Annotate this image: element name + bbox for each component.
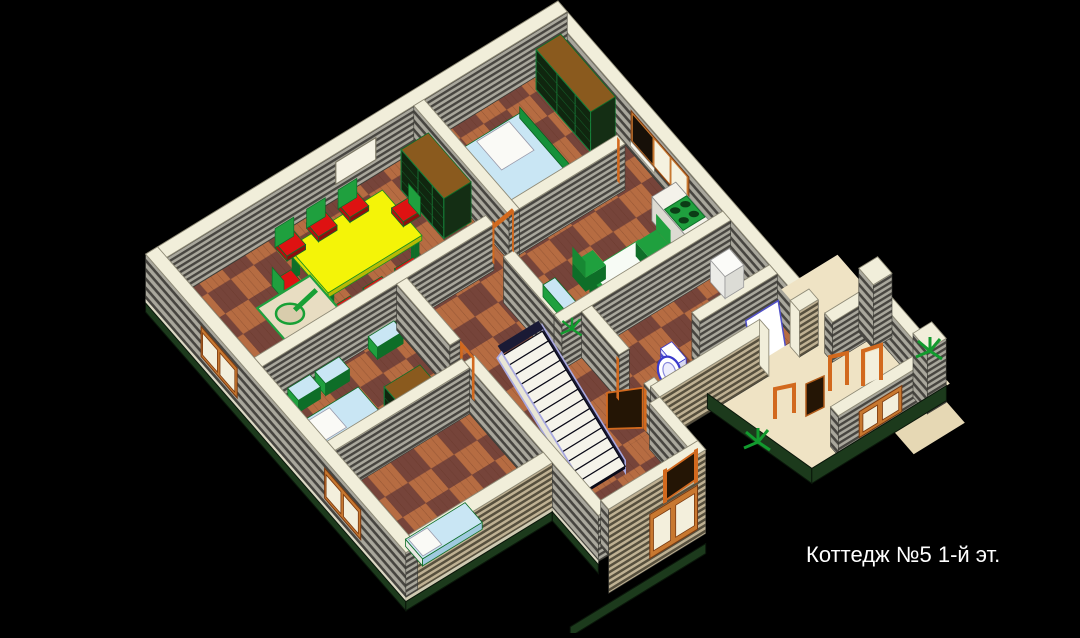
svg-text:Коттедж №5 1-й эт.: Коттедж №5 1-й эт.: [806, 542, 1000, 567]
